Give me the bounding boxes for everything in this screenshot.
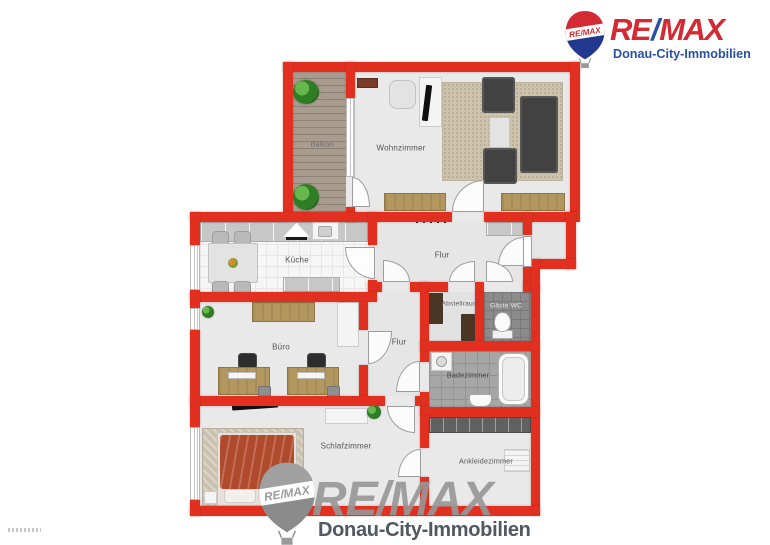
balcony-window xyxy=(346,98,355,177)
armchair xyxy=(389,80,416,109)
kitchen-island xyxy=(283,277,340,292)
label-flur-oben: Flur xyxy=(435,251,450,260)
storage-shelf xyxy=(461,314,475,341)
plant-icon xyxy=(293,80,319,104)
gap-floor xyxy=(452,212,484,222)
header-logo: RE/MAX RE/MAX Donau-City-Immobilien xyxy=(560,8,765,68)
plant-icon xyxy=(293,184,319,210)
storage-shelf xyxy=(429,293,443,324)
wall xyxy=(283,62,293,212)
wall xyxy=(190,396,385,406)
wall xyxy=(190,330,200,427)
pillow xyxy=(258,489,290,503)
wall xyxy=(190,290,200,308)
label-balkon: Balkon xyxy=(311,142,334,149)
gap-floor xyxy=(484,282,523,292)
wall xyxy=(570,62,580,212)
wall xyxy=(415,396,420,406)
wardrobe xyxy=(501,193,565,211)
window xyxy=(190,245,200,290)
label-wohnzimmer: Wohnzimmer xyxy=(377,144,426,153)
remax-subtitle: Donau-City-Immobilien xyxy=(613,47,751,61)
monitor-icon xyxy=(228,372,256,379)
wall xyxy=(190,212,452,222)
wall xyxy=(475,292,484,341)
fruit-bowl-icon xyxy=(228,258,238,268)
plant-icon xyxy=(202,306,214,318)
window xyxy=(190,427,200,500)
bed-duvet xyxy=(220,435,294,489)
label-kueche: Küche xyxy=(285,256,309,265)
gap-floor xyxy=(448,282,475,292)
wall xyxy=(410,282,448,292)
wall xyxy=(190,212,200,245)
wall xyxy=(531,259,540,515)
remax-wordmark: RE/MAX xyxy=(610,12,724,48)
nightstand xyxy=(298,491,311,504)
fine-print-text xyxy=(8,528,41,532)
washing-machine-door-icon xyxy=(436,356,447,367)
toilet-icon xyxy=(494,312,511,332)
label-schlafzimmer: Schlafzimmer xyxy=(321,442,372,451)
label-gaeste-wc: Gäste WC xyxy=(490,303,522,310)
armchair xyxy=(482,77,515,113)
wall xyxy=(420,407,540,417)
wall xyxy=(346,62,355,98)
bathroom-sink xyxy=(469,394,492,407)
plant-icon xyxy=(367,405,381,419)
label-ankleidezimmer: Ankleidezimmer xyxy=(459,457,513,466)
sink-basin-icon xyxy=(318,226,332,237)
monitor-icon xyxy=(297,372,325,379)
sofa xyxy=(520,96,558,173)
office-cabinet xyxy=(337,302,359,347)
wardrobe xyxy=(384,193,446,211)
gap-floor xyxy=(385,396,415,406)
wall xyxy=(283,62,580,72)
label-flur-unten: Flur xyxy=(392,338,407,347)
window xyxy=(190,308,200,330)
wall xyxy=(359,302,368,330)
armchair xyxy=(483,148,517,184)
wall xyxy=(368,212,377,245)
wall xyxy=(368,280,377,292)
wall xyxy=(190,292,377,302)
pillow xyxy=(224,489,256,503)
label-abstellraum: Abstellraum xyxy=(441,301,478,308)
closet-shelf xyxy=(429,417,531,433)
wall xyxy=(190,500,200,516)
stove-icon xyxy=(286,237,307,240)
wall xyxy=(420,416,429,448)
entrance-door-leaf xyxy=(523,236,532,267)
gap-floor xyxy=(420,448,429,477)
floorplan-page: Balkon Wohnzimmer Küche Flur Abstellraum… xyxy=(0,0,770,545)
wall xyxy=(475,282,484,292)
gap-floor xyxy=(359,330,368,365)
label-buero: Büro xyxy=(272,343,290,352)
wall xyxy=(359,365,368,396)
nightstand xyxy=(204,491,217,504)
wall xyxy=(190,506,540,516)
gap-floor xyxy=(420,362,429,392)
remax-balloon-icon: RE/MAX xyxy=(562,10,608,68)
dresser xyxy=(325,408,368,424)
office-sideboard xyxy=(252,302,315,322)
wall xyxy=(523,212,532,235)
entrance-niche xyxy=(532,222,566,259)
wall xyxy=(420,341,540,351)
bathtub-inner xyxy=(502,357,525,401)
watermark-subtitle: Donau-City-Immobilien xyxy=(318,519,531,542)
label-badezimmer: Badezimmer xyxy=(447,371,489,380)
sideboard xyxy=(357,78,378,88)
coffee-table xyxy=(489,117,510,148)
hall-cabinet xyxy=(486,222,523,236)
gap-floor xyxy=(382,282,410,292)
